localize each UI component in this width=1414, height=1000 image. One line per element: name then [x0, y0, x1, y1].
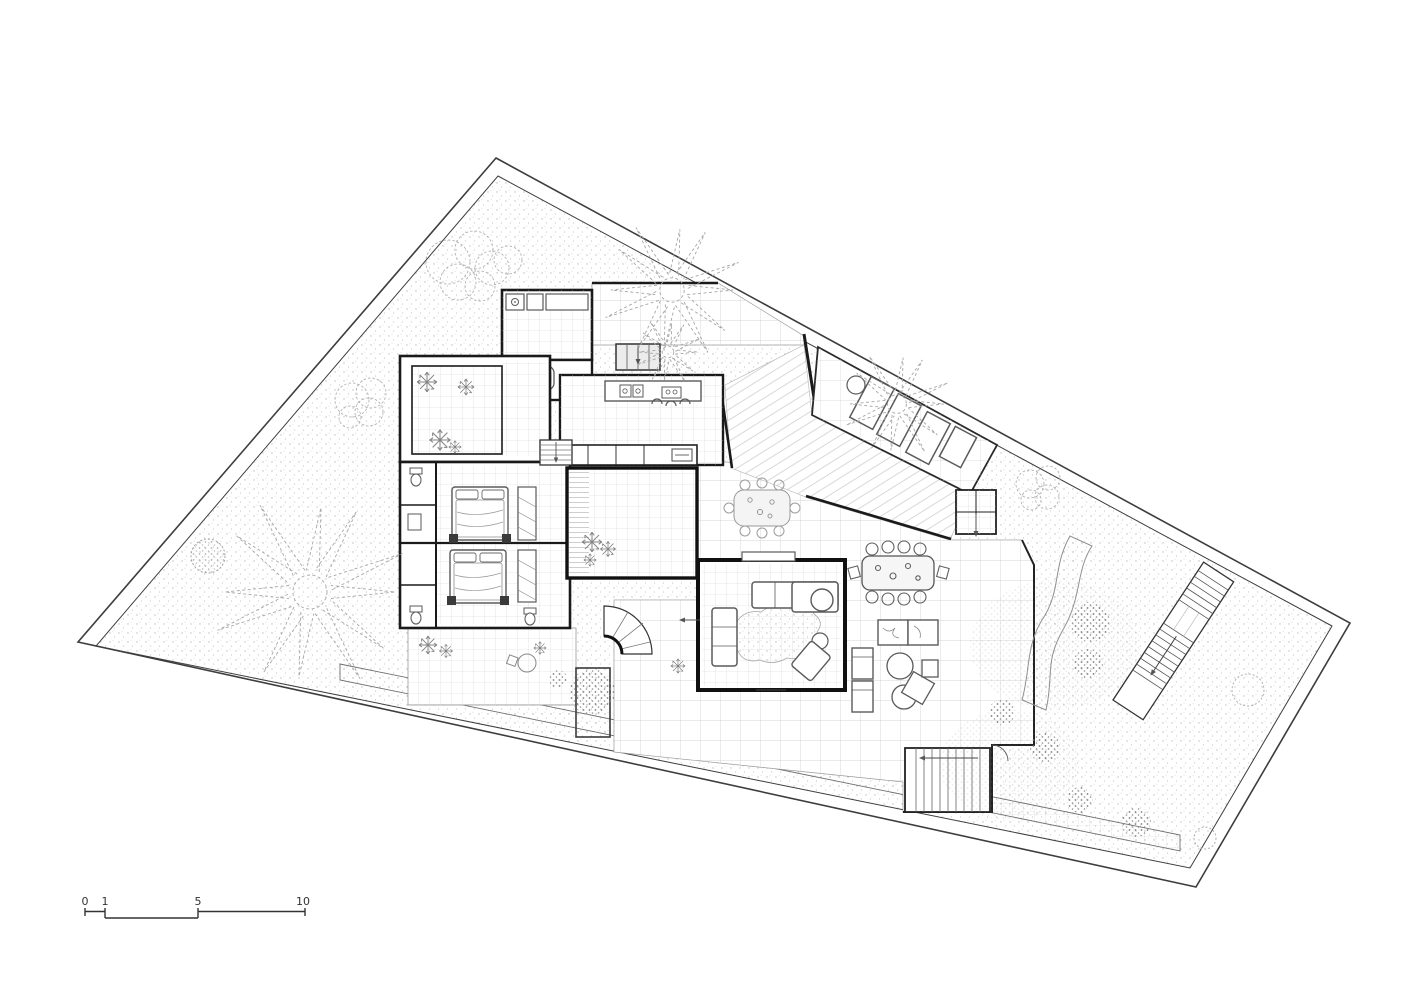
scale-label-1: 1: [102, 895, 109, 908]
stairs-small: [540, 440, 572, 465]
central-courtyard: [567, 468, 697, 578]
shrub: [549, 670, 567, 688]
round-tree-far-west: [191, 539, 225, 573]
scale-label-5: 5: [195, 895, 202, 908]
wardrobe-2: [518, 550, 536, 602]
wardrobe-1: [518, 487, 536, 540]
shrub: [569, 669, 615, 715]
sofa-long: [712, 608, 737, 666]
floor-plan-drawing: 0 1 5 10: [0, 0, 1414, 1000]
west-courtyard: [400, 356, 550, 462]
console-table: [742, 552, 795, 561]
entry-steps: [616, 344, 660, 370]
bedroom-block: [400, 462, 570, 628]
north-terrace: [592, 283, 804, 345]
outdoor-daybeds: [878, 620, 938, 645]
northeast-landing-steps: [956, 490, 996, 536]
bed-2: [447, 550, 509, 605]
scale-label-0: 0: [82, 895, 89, 908]
utility-room: [502, 290, 592, 360]
bed-1: [449, 487, 511, 543]
scale-label-10: 10: [296, 895, 310, 908]
toilet: [410, 468, 422, 486]
toilet: [524, 608, 536, 625]
living-room: [680, 552, 845, 690]
armchair: [811, 589, 833, 611]
floor-plan-sheet: 0 1 5 10: [0, 0, 1414, 1000]
toilet: [410, 606, 422, 624]
cabinet-row: [560, 445, 697, 465]
sink: [408, 514, 421, 530]
scale-bar: 0 1 5 10: [82, 895, 311, 918]
side-table: [847, 376, 865, 394]
kitchen-counter: [605, 381, 701, 401]
